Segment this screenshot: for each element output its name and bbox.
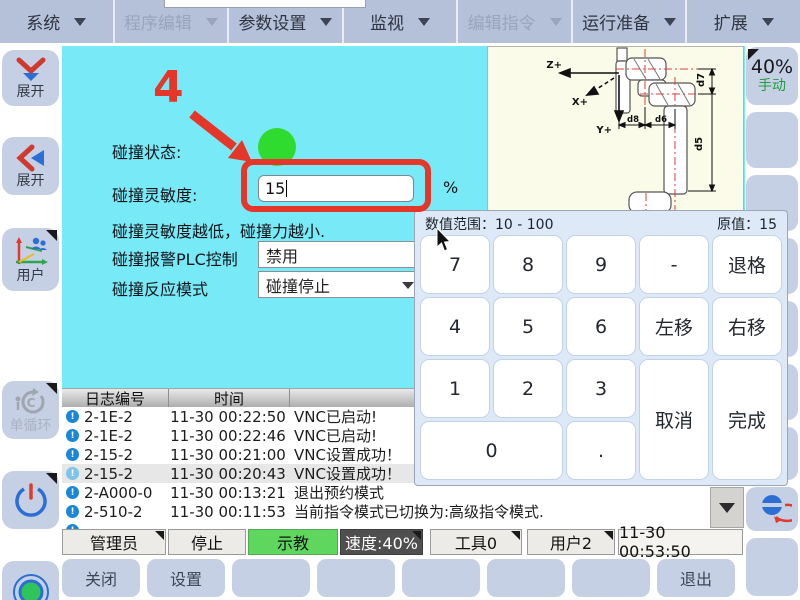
user-coordinate-button[interactable]: 用户 [2,228,59,291]
info-icon: ! [66,448,79,461]
power-icon [12,481,50,519]
double-chevron-down-icon [13,57,49,83]
menu-edit-instruction: 编辑指令 [458,0,573,43]
user-axes-icon [12,235,50,267]
speed-mode-button[interactable]: 40% 手动 [746,47,798,105]
svg-text:d8: d8 [627,115,639,125]
menu-extend[interactable]: 扩展 [687,0,800,43]
offscreen-window-edge [164,0,366,8]
settings-button[interactable]: 设置 [147,559,225,597]
sidebar: 展开 展开 用户 [0,46,62,600]
corner-marker-icon [46,473,57,484]
key-minus[interactable]: - [639,235,709,294]
svg-text:Y+: Y+ [595,125,612,136]
key-dot[interactable]: . [566,421,636,480]
rotate-world-icon [752,492,792,526]
chevron-down-icon [320,18,332,26]
double-chevron-left-icon [14,144,48,172]
chevron-down-icon [550,18,562,26]
key-move-right[interactable]: 右移 [712,297,782,356]
single-cycle-label: 单循环 [10,419,52,434]
annotation-highlight-box [241,159,431,212]
info-icon: ! [66,429,79,442]
expand-down-button[interactable]: 展开 [2,50,59,106]
record-icon [10,571,52,600]
blank-function-button[interactable] [317,559,395,597]
key-9[interactable]: 9 [566,235,636,294]
key-0[interactable]: 0 [420,421,563,480]
key-1[interactable]: 1 [420,359,490,418]
corner-marker-icon [46,230,57,241]
single-cycle-button: C 单循环 [2,381,59,439]
numeric-keypad-popup: 数值范围：10 - 100 原值：15 7 8 9 - 退格 4 5 6 左移 … [414,210,788,486]
svg-text:X+: X+ [572,97,588,108]
svg-text:d5: d5 [694,137,705,151]
log-scroll-down-button[interactable] [710,487,744,528]
collision-status-label: 碰撞状态: [112,139,181,163]
expand-label: 展开 [17,174,45,189]
expand-label: 展开 [17,85,45,100]
chevron-down-icon [664,18,676,26]
key-backspace[interactable]: 退格 [712,235,782,294]
original-value-label: 原值：15 [717,214,777,234]
blank-function-button[interactable] [487,559,565,597]
chevron-down-icon [206,18,218,26]
menu-run-prepare[interactable]: 运行准备 [573,0,688,43]
info-icon: ! [66,505,79,518]
robot-arm-drawing: Z+ X+ Y+ d7 d5 d8 d6 [488,47,743,213]
expand-left-button[interactable]: 展开 [2,137,59,195]
corner-marker-icon [155,531,164,540]
key-5[interactable]: 5 [493,297,563,356]
key-6[interactable]: 6 [566,297,636,356]
menu-bar: 系统 程序编辑 参数设置 监视 编辑指令 运行准备 扩展 [0,0,800,43]
teach-pendant-screen: 系统 程序编辑 参数设置 监视 编辑指令 运行准备 扩展 展开 [0,0,800,600]
close-button[interactable]: 关闭 [62,559,140,597]
key-move-left[interactable]: 左移 [639,297,709,356]
reaction-mode-dropdown[interactable]: 碰撞停止 [258,271,423,298]
corner-marker-icon [412,531,421,540]
key-done[interactable]: 完成 [712,359,782,480]
blank-function-button[interactable] [232,559,310,597]
status-user-level[interactable]: 管理员 [62,529,166,555]
svg-text:Z+: Z+ [546,60,562,71]
blank-function-button[interactable] [572,559,650,597]
chevron-down-icon [402,282,414,289]
chevron-down-icon [418,18,430,26]
status-speed[interactable]: 速度:40% [340,529,423,555]
status-run-state[interactable]: 停止 [168,529,246,555]
blank-side-button[interactable] [746,112,798,168]
svg-text:d6: d6 [655,115,667,125]
log-col-time: 时间 [169,389,290,407]
user-label: 用户 [17,269,45,284]
key-8[interactable]: 8 [493,235,563,294]
log-col-id: 日志编号 [62,389,169,407]
status-tool[interactable]: 工具0 [430,529,522,555]
blank-function-button[interactable] [402,559,480,597]
sensitivity-hint: 碰撞灵敏度越低，碰撞力越小. [112,218,325,242]
annotation-arrow-icon [182,102,262,172]
menu-system[interactable]: 系统 [0,0,115,43]
robot-dimension-diagram: Z+ X+ Y+ d7 d5 d8 d6 [487,46,744,214]
mouse-cursor-icon [436,228,453,253]
corner-marker-icon [46,383,57,394]
status-user-frame[interactable]: 用户2 [527,529,615,555]
key-2[interactable]: 2 [493,359,563,418]
svg-text:C: C [26,396,35,410]
status-clock: 11-30 00:53:50 [618,529,743,555]
exit-button[interactable]: 退出 [657,559,735,597]
key-4[interactable]: 4 [420,297,490,356]
single-cycle-icon: C [13,387,49,417]
corner-marker-icon [748,49,759,60]
plc-control-label: 碰撞报警PLC控制 [112,246,238,270]
svg-text:d7: d7 [696,73,707,87]
reaction-mode-label: 碰撞反应模式 [112,276,208,300]
collision-sensitivity-label: 碰撞灵敏度: [112,182,197,206]
info-icon: ! [66,410,79,423]
key-3[interactable]: 3 [566,359,636,418]
annotation-step-number: 4 [153,62,184,113]
plc-control-value[interactable]: 禁用 [258,241,423,268]
rotate-world-button[interactable] [746,487,798,531]
status-mode-teach[interactable]: 示教 [248,529,338,555]
chevron-down-icon [762,18,774,26]
key-cancel[interactable]: 取消 [639,359,709,480]
log-row[interactable]: !2-510-2 11-30 00:11:53当前指令模式已切换为:高级指令模式… [62,502,745,521]
key-7[interactable]: 7 [420,235,490,294]
power-button[interactable] [2,471,59,529]
record-start-button[interactable] [2,561,59,600]
triangle-down-icon [719,503,735,513]
corner-marker-icon [511,531,520,540]
percent-unit-label: % [443,178,458,197]
blank-side-button[interactable] [746,538,798,596]
corner-marker-icon [604,531,613,540]
info-icon: ! [66,467,79,480]
chevron-down-icon [74,18,86,26]
info-icon: ! [66,486,79,499]
